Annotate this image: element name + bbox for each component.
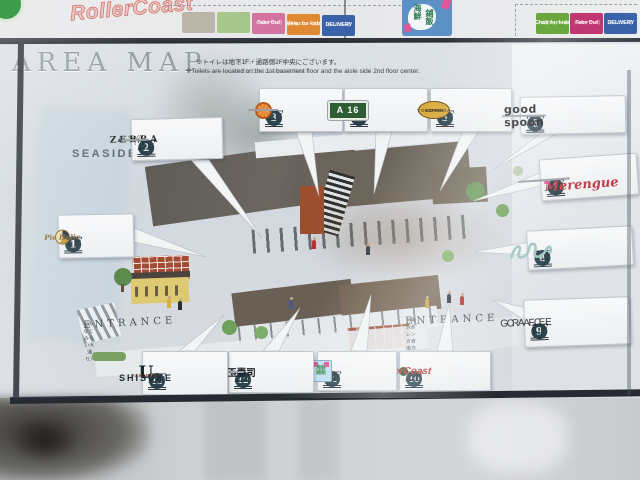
map-callout-1: 1 1F Pie Holic xyxy=(58,213,135,258)
map-callout-8: 8 1F xyxy=(526,225,634,270)
top-banner: RollerCoast テイクアウト可Take Out お子様メニューありMen… xyxy=(0,0,640,38)
area-map-photo: AREA MAP ※――――は地下1Fにございます。※トイレは地下1F・通路側2… xyxy=(0,0,640,480)
map-callout-11: 11 2F 海鮮鋪飯 xyxy=(317,351,397,391)
dashed-divider xyxy=(515,4,516,36)
map-callout-5: 5 1F COFFEE YOKOHAMA xyxy=(430,88,512,132)
service-tag-kids-menu: お子様メニューありMenu for kids xyxy=(287,14,320,35)
pink-ribbon-icon xyxy=(441,0,452,10)
shadow-band xyxy=(298,398,338,480)
map-callout-13: 13 2F U YAKINIKU SHISUKE xyxy=(142,351,228,395)
light-blob xyxy=(468,403,568,473)
service-tag-takeout: テイクアウト可Take Out xyxy=(570,13,603,34)
shadow-band xyxy=(205,398,265,480)
service-tag xyxy=(217,12,250,33)
service-tag-delivery: デリバリー可DELIVERY xyxy=(604,13,637,34)
photo-bottom-area xyxy=(0,398,640,480)
shadow-blob xyxy=(10,418,80,463)
dashed-divider xyxy=(168,5,406,6)
map-callout-12: 12 2F 築地玉壽司 xyxy=(228,351,314,393)
service-tag-delivery: デリバリー可DELIVERY xyxy=(322,15,355,36)
map-callout-9: 9 1F CAFE GRACE xyxy=(523,296,631,348)
kaisen-vertical-sign: 海鮮 鋪飯 xyxy=(402,0,452,36)
cursive-script-icon xyxy=(504,237,557,264)
map-callout-7: 7 2F Merengue xyxy=(539,153,640,202)
service-tag-takeout: テイクアウト可Take Out xyxy=(252,13,285,34)
dashed-divider xyxy=(515,4,637,5)
map-callout-10: 10 2F RollerCoast xyxy=(399,351,491,391)
green-circle-icon xyxy=(0,0,24,22)
service-tag-kids-chair: キッズ用チェアーありChair for kids xyxy=(536,13,569,34)
board-frame-right xyxy=(627,70,631,395)
service-tag xyxy=(182,12,215,33)
page-title: AREA MAP xyxy=(12,48,207,78)
brand-logo: RollerCoast xyxy=(69,0,194,26)
map-callout-2: 2 2F ZEBRA xyxy=(130,117,223,161)
map-callout-6: 6 2F good spoon xyxy=(520,95,627,135)
map-callout-4: 4 2F A 16 xyxy=(344,88,428,132)
logo-small-text xyxy=(253,109,273,111)
